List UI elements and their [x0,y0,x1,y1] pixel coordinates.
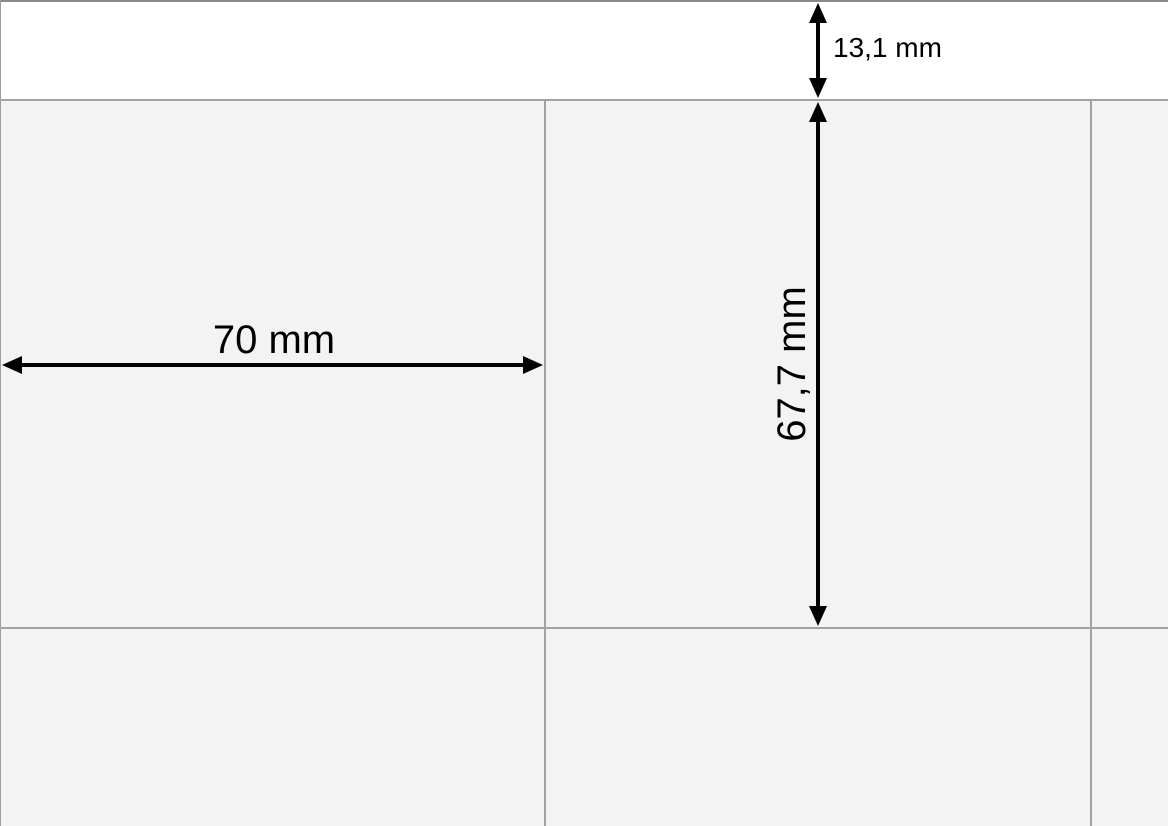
top-margin-dimension-label: 13,1 mm [833,34,942,62]
arrowhead-right-icon [523,356,543,374]
label-width-dimension-label: 70 mm [168,320,380,360]
arrowhead-up-icon [809,3,827,23]
grid-line-horizontal-row-divider [0,627,1168,629]
grid-line-vertical-column-1 [544,99,546,826]
label-sheet-preview: 13,1 mm 70 mm 67,7 mm [0,0,1168,826]
label-height-dimension-label: 67,7 mm [772,286,812,442]
page-left-border [0,0,1,826]
arrow-shaft [22,363,523,367]
label-grid-area [0,100,1168,826]
arrow-shaft [816,122,820,606]
arrowhead-down-icon [809,78,827,98]
arrowhead-left-icon [2,356,22,374]
grid-line-horizontal-top-margin [0,99,1168,101]
grid-line-vertical-column-2 [1090,99,1092,826]
arrow-shaft [816,23,820,78]
arrowhead-down-icon [809,606,827,626]
top-margin-dimension-arrow [809,3,827,98]
arrowhead-up-icon [809,102,827,122]
page-top-border [0,0,1168,2]
